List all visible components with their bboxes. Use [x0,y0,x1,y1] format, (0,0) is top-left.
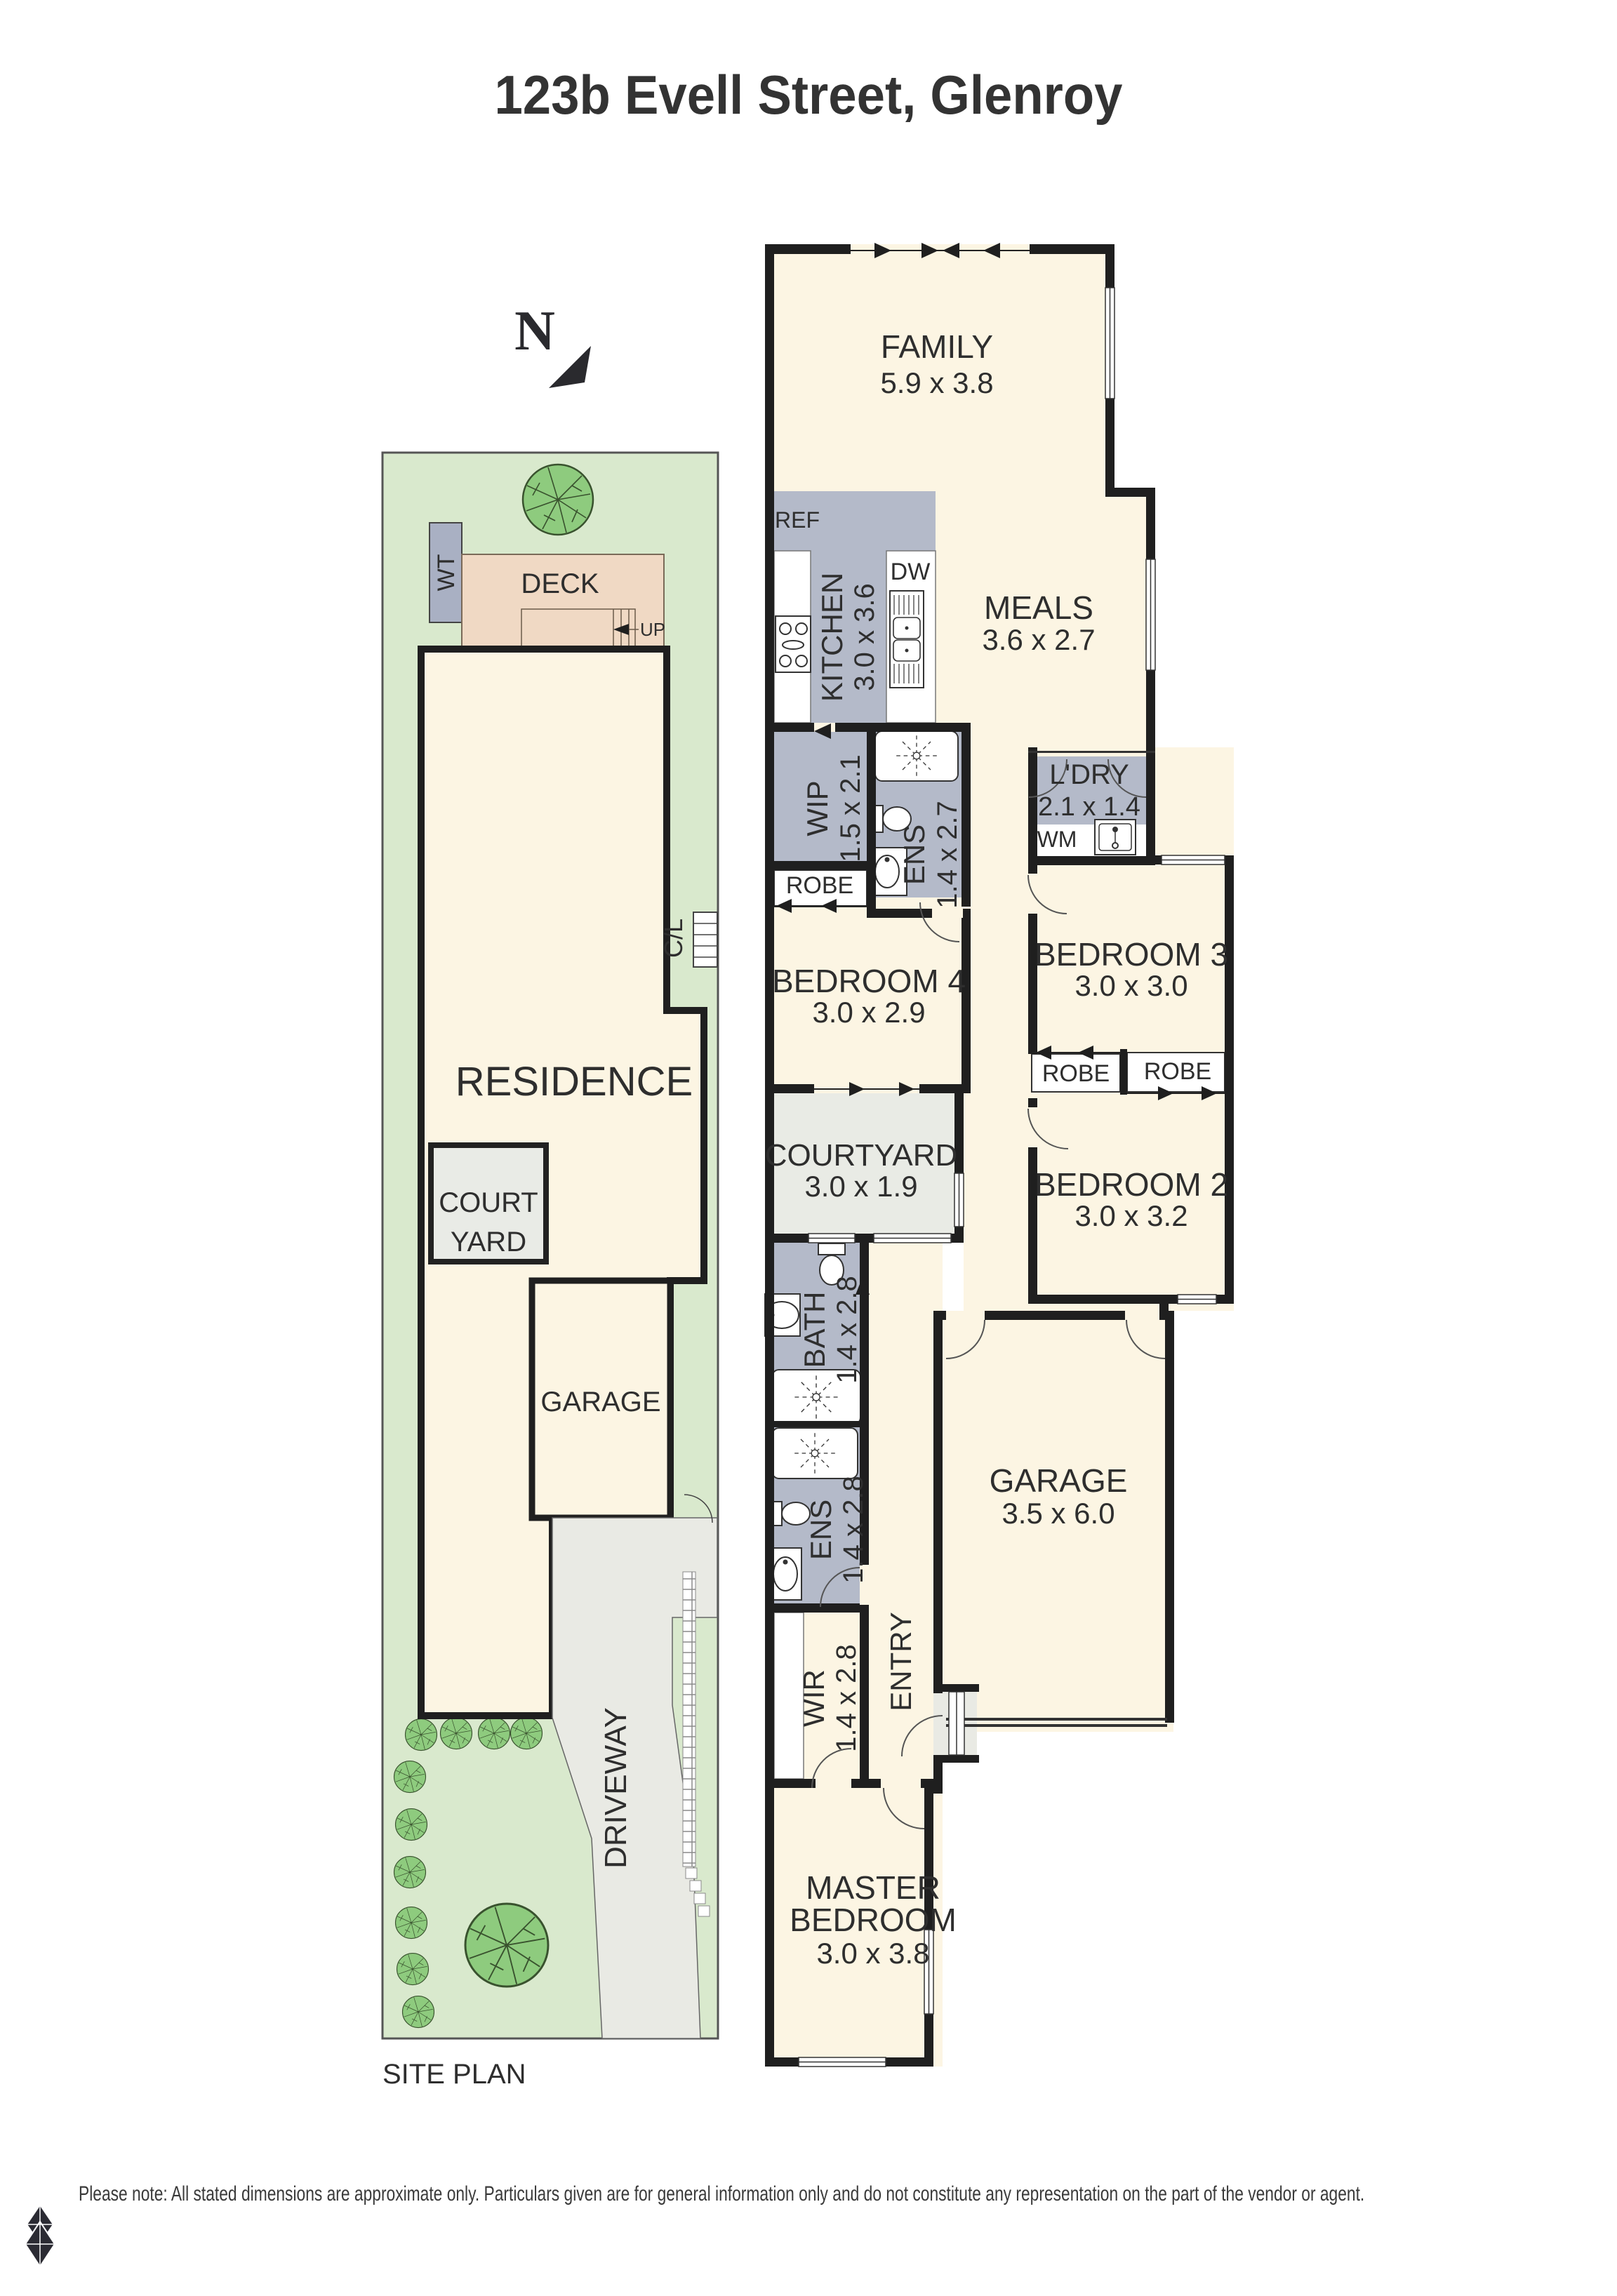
shower-icon [772,1428,858,1479]
room-dims-meals: 3.6 x 2.7 [982,625,1095,655]
room-dims-wir: 1.4 x 2.8 [832,1644,860,1751]
robe-label-bed4: ROBE [786,874,853,897]
north-label: N [514,303,555,359]
tree-icon [465,1904,548,1987]
clothesline-label: C/L [661,919,686,958]
room-label-master1: MASTER [806,1871,940,1904]
dishwasher-label: DW [891,560,931,584]
room-label-ens-lower: ENS [806,1500,836,1560]
room-dims-laundry: 2.1 x 1.4 [1038,794,1140,820]
site-courtyard-label: COURT [439,1189,538,1217]
clothesline [693,912,717,967]
room-label-entry: ENTRY [886,1612,916,1711]
site-plan [382,453,718,2038]
window [799,2057,886,2067]
window [949,1692,964,1755]
driveway-label: DRIVEWAY [601,1707,632,1869]
room-label-courtyard: COURTYARD [765,1140,958,1171]
room-dims-ens-upper: 1.4 x 2.7 [933,801,961,908]
room-label-bedroom3: BEDROOM 3 [1034,938,1228,970]
room-label-ens-upper: ENS [900,825,929,885]
room-dims-bedroom4: 3.0 x 2.9 [812,998,925,1027]
fridge-label: REF [775,509,820,531]
room-dims-bedroom2: 3.0 x 3.2 [1074,1201,1187,1231]
window [874,1234,951,1243]
room-label-meals: MEALS [984,592,1093,624]
room-label-bath: BATH [800,1292,830,1368]
room-dims-kitchen: 3.0 x 3.6 [851,583,879,690]
residence-label: RESIDENCE [455,1062,693,1102]
cooktop-icon [776,616,811,672]
room-dims-wip: 1.5 x 2.1 [837,754,865,862]
room-label-wip: WIP [803,780,832,836]
window [1146,559,1155,670]
room-label-wir: WIR [799,1669,829,1727]
north-arrow-icon [549,346,591,388]
window [808,1234,855,1243]
laundry-tub-icon [1095,820,1136,855]
robe-label-bed2: ROBE [1144,1060,1211,1083]
water-tank-label: WT [434,554,458,592]
washing-machine-label: WM [1037,828,1077,850]
kitchen-sink-icon [890,591,924,688]
room-dims-garage: 3.5 x 6.0 [1002,1499,1114,1528]
room-label-kitchen: KITCHEN [818,573,847,702]
room-label-master2: BEDROOM [790,1904,957,1936]
window [954,1173,964,1227]
room-dims-bath: 1.4 x 2.8 [833,1276,861,1383]
page-title: 123b Evell Street, Glenroy [494,67,1122,122]
shower-icon [875,731,958,781]
deck-label: DECK [521,570,599,598]
up-label: UP [640,620,665,639]
room-dims-ens-lower: 1.4 x 2.8 [839,1476,867,1583]
room-label-family: FAMILY [881,331,993,363]
room-dims-family: 5.9 x 3.8 [880,368,993,398]
room-label-bedroom2: BEDROOM 2 [1034,1168,1228,1201]
room-label-garage: GARAGE [990,1464,1128,1497]
site-plan-caption: SITE PLAN [382,2060,526,2088]
window [1178,1295,1216,1304]
room-dims-courtyard: 3.0 x 1.9 [804,1172,917,1201]
room-dims-master: 3.0 x 3.8 [816,1939,929,1968]
window [1105,288,1114,399]
robe-label-bed3: ROBE [1042,1062,1110,1086]
room-label-bedroom4: BEDROOM 4 [772,965,966,997]
site-garage-label: GARAGE [540,1388,660,1416]
room-dims-bedroom3: 3.0 x 3.0 [1074,971,1187,1001]
room-label-laundry: L'DRY [1049,761,1129,789]
disclaimer-text: Please note: All stated dimensions are a… [79,2184,1364,2205]
tree-icon [523,465,593,535]
window [1162,855,1225,865]
agency-logo-icon [25,2205,55,2267]
site-courtyard-label: YARD [451,1228,526,1256]
floorplan-page: 123b Evell Street, Glenroy N WT DECK UP … [0,0,1617,2296]
